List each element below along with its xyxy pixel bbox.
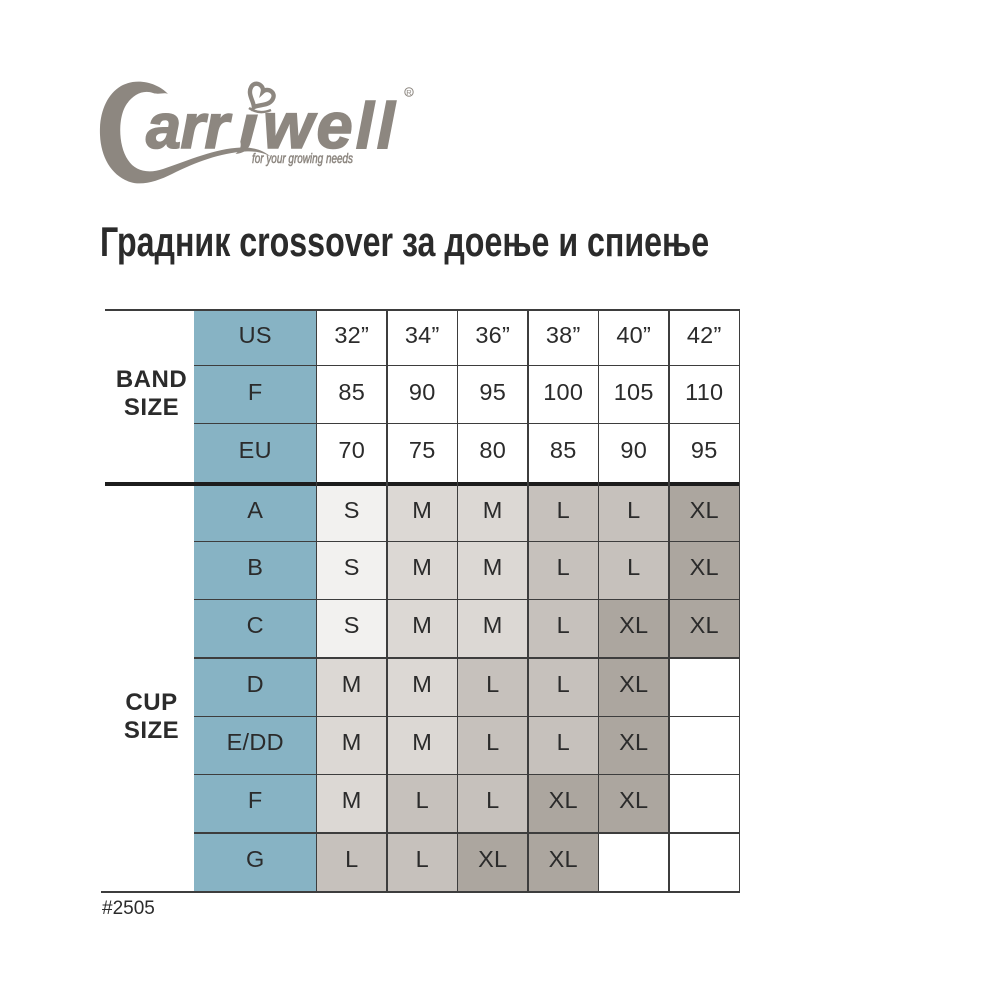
svg-text:for your growing needs: for your growing needs xyxy=(252,150,353,166)
svg-text:R: R xyxy=(406,88,412,97)
svg-text:arr: arr xyxy=(146,92,233,162)
